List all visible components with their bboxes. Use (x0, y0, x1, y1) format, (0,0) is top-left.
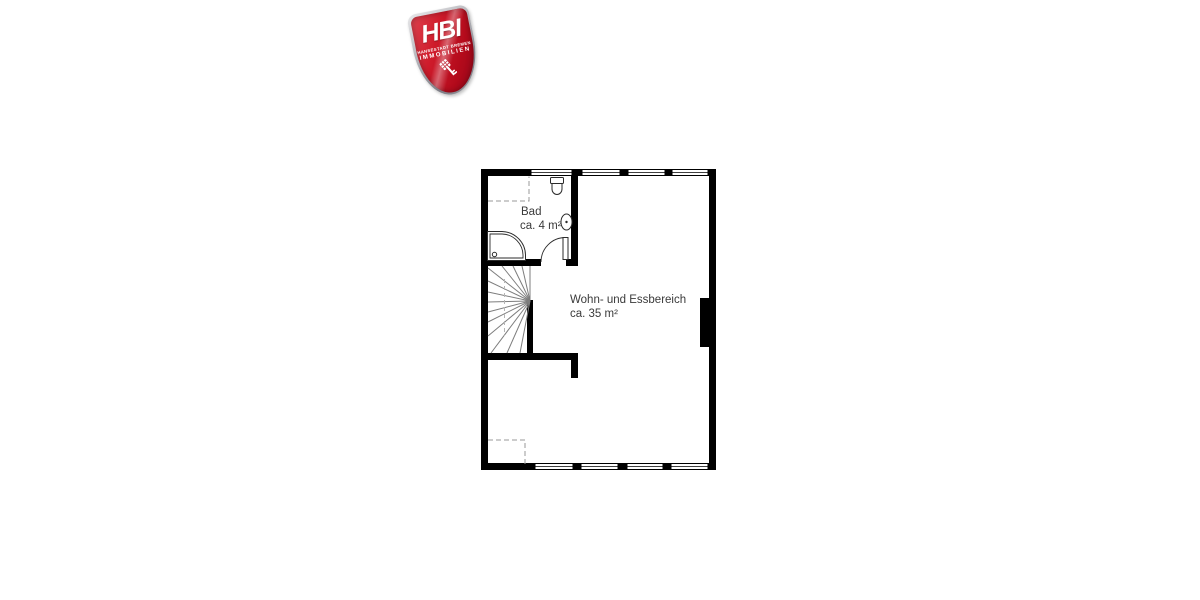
window (671, 464, 708, 470)
wall-top (620, 169, 628, 176)
door-leaf (563, 238, 568, 260)
shower-drain (492, 252, 496, 256)
room-label-wohnen: Wohn- und Essbereich (570, 294, 686, 306)
window (672, 170, 708, 176)
bathroom-wall-bottom (566, 259, 578, 266)
wall-bottom (573, 463, 581, 470)
wall-bottom (618, 463, 627, 470)
stair-wall-bottom (481, 353, 578, 360)
windows (531, 170, 708, 470)
room-area-bad: ca. 4 m² (520, 220, 562, 232)
wall-bottom (481, 463, 535, 470)
floor-plan: Bad ca. 4 m² Wohn- und Essbereich ca. 35… (0, 0, 1200, 600)
wall-top (665, 169, 672, 176)
page: HBI HANSESTADT BREMEN IMMOBILIEN (0, 0, 1200, 600)
window (627, 464, 663, 470)
sink-drain (565, 221, 567, 223)
window (581, 464, 618, 470)
winder-stairs (488, 266, 530, 353)
wall-right (709, 169, 716, 470)
chimney-block (700, 298, 709, 347)
window (531, 170, 572, 176)
wall-bottom (663, 463, 671, 470)
room-area-wohnen: ca. 35 m² (570, 308, 618, 320)
wall-top (481, 169, 531, 176)
wall-left (481, 169, 488, 470)
window (535, 464, 573, 470)
window (628, 170, 665, 176)
ceiling-slope-dashed-line (488, 177, 529, 202)
room-label-bad: Bad (521, 206, 541, 218)
stair-wall-stub (571, 360, 578, 378)
stair-newel-wall (527, 300, 533, 353)
wall-top (571, 169, 582, 176)
toilet-icon (551, 178, 564, 184)
toilet-bowl (552, 184, 562, 195)
door-swing-arc (541, 238, 566, 263)
window (582, 170, 620, 176)
niche-dashed-line (488, 440, 525, 466)
